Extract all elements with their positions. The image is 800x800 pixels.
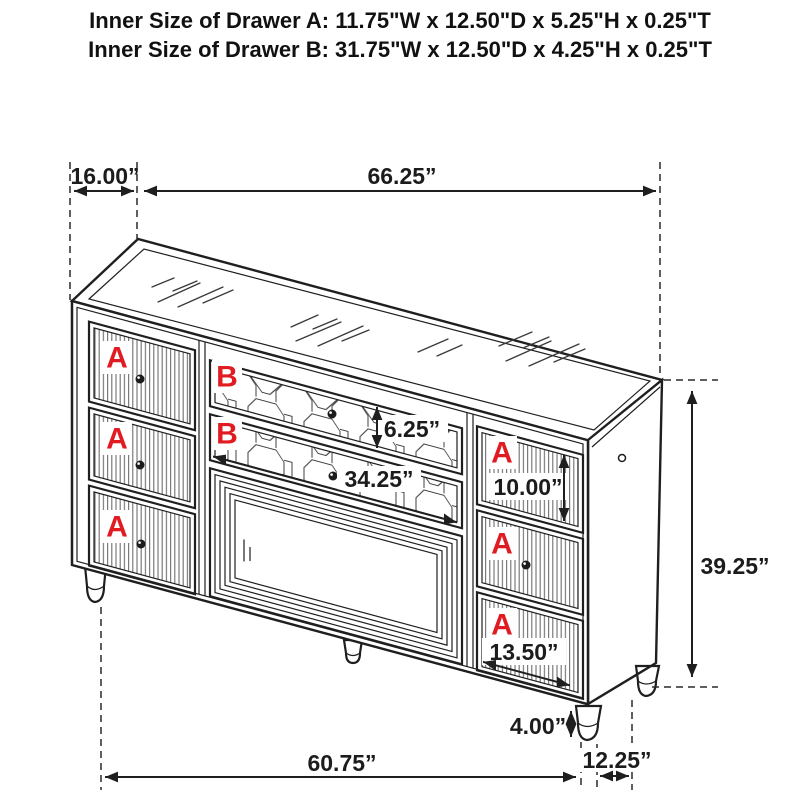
- label-drawer-a: A: [106, 511, 128, 544]
- knob-icon: [136, 461, 145, 470]
- knob-icon: [137, 540, 146, 549]
- label-drawer-b: B: [216, 418, 238, 451]
- dim-drawer-b-height: 6.25”: [384, 416, 440, 442]
- dresser-drawing: 16.00” 66.25” 6.25” 34.25” 10.00” 39.25”…: [0, 0, 800, 800]
- dim-front-width: 60.75”: [307, 750, 376, 776]
- label-drawer-a: A: [491, 437, 513, 470]
- dim-total-height: 39.25”: [700, 553, 769, 579]
- dim-side-depth: 12.25”: [582, 747, 651, 773]
- knob-icon: [136, 375, 145, 384]
- dim-total-width: 66.25”: [367, 163, 436, 189]
- dim-leg-height: 4.00”: [510, 713, 566, 739]
- label-drawer-a: A: [106, 423, 128, 456]
- label-drawer-a: A: [491, 609, 513, 642]
- dim-left-depth: 16.00”: [70, 163, 139, 189]
- front-right-leg: [576, 706, 601, 740]
- dim-drawer-a-right-height: 10.00”: [493, 474, 562, 500]
- label-drawer-a: A: [491, 528, 513, 561]
- dim-drawer-a-right-width: 13.50”: [489, 639, 558, 665]
- knob-icon: [329, 472, 338, 481]
- dim-drawer-b-width: 34.25”: [344, 466, 413, 492]
- furniture-dimension-diagram: Inner Size of Drawer A: 11.75"W x 12.50"…: [0, 0, 800, 800]
- knob-icon: [522, 561, 531, 570]
- knob-icon: [328, 410, 337, 419]
- label-drawer-a: A: [106, 342, 128, 375]
- label-drawer-b: B: [216, 361, 238, 394]
